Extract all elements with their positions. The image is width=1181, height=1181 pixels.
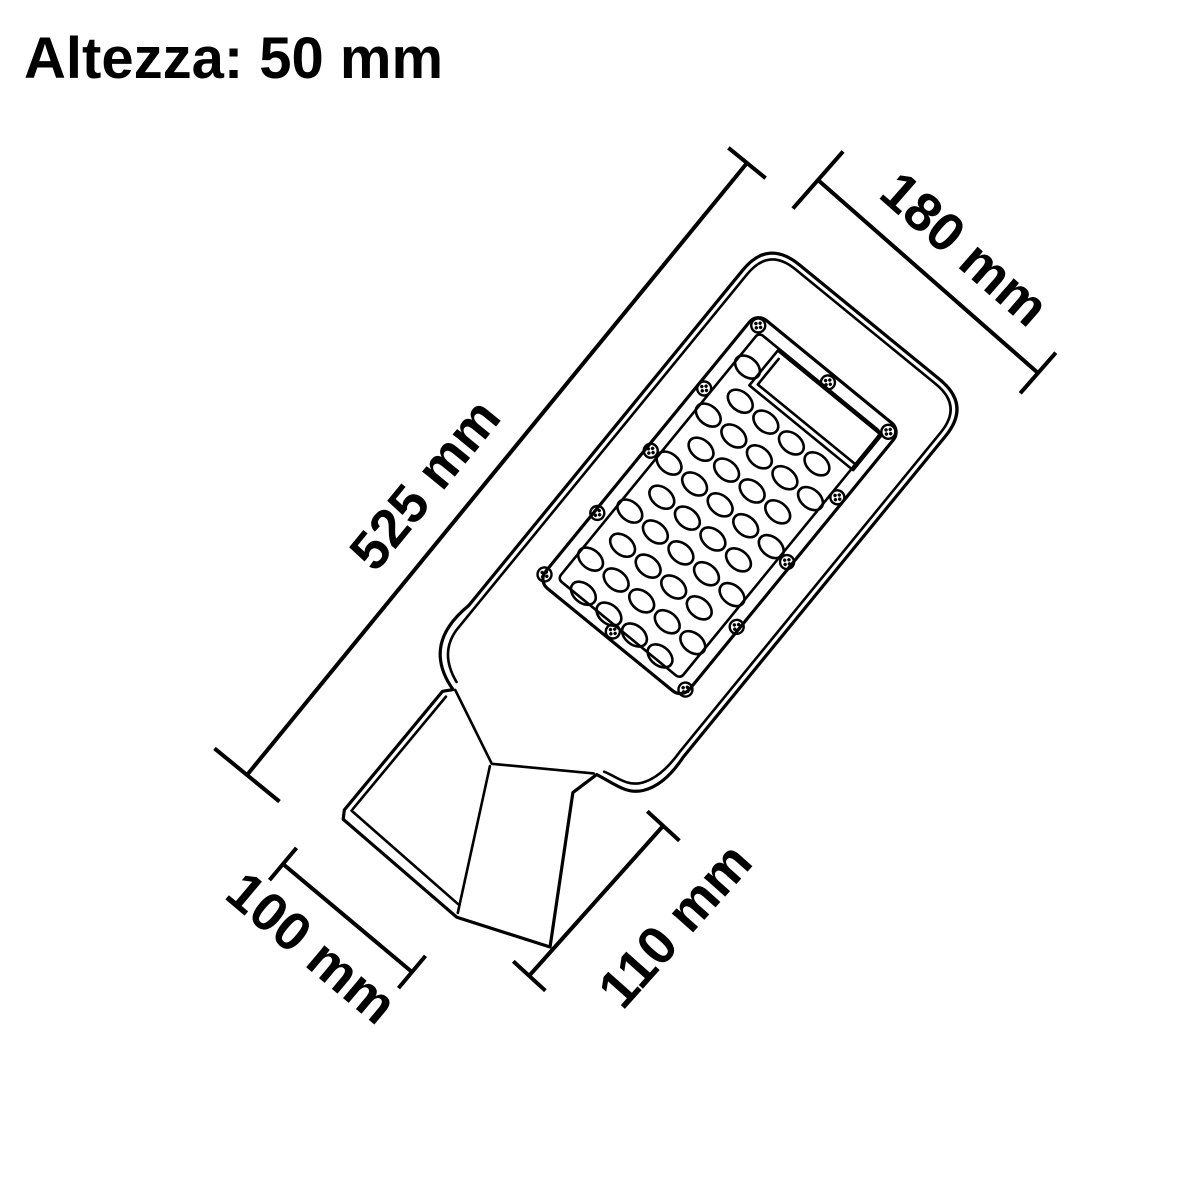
dimension-tick	[1020, 353, 1056, 394]
led-lens	[749, 406, 783, 438]
led-lens	[657, 571, 691, 603]
dimension-head-width: 180 mm	[793, 151, 1060, 393]
led-lens	[735, 475, 769, 507]
led-lens	[613, 495, 647, 527]
led-lens	[639, 516, 673, 548]
dimension-label-mount-length: 110 mm	[587, 832, 764, 1020]
led-lens	[684, 433, 718, 465]
led-lens	[567, 577, 601, 609]
led-lens	[678, 468, 712, 500]
screw-icon	[676, 680, 696, 700]
street-light-dimension-diagram: Altezza: 50 mm	[0, 0, 1181, 1181]
neck-crease-lines	[434, 672, 594, 817]
led-lens	[743, 441, 777, 473]
led-lens	[710, 454, 744, 486]
screw-set	[534, 311, 903, 701]
dimension-mount-width: 100 mm	[215, 848, 425, 1036]
led-lens	[723, 385, 757, 417]
led-lens	[717, 420, 751, 452]
dimension-tick	[399, 956, 426, 988]
led-lens	[671, 502, 705, 534]
led-lens	[645, 481, 679, 513]
led-lens	[676, 626, 710, 658]
dimension-line	[247, 163, 747, 775]
dimension-mount-length: 110 mm	[513, 811, 763, 1019]
drawing-title: Altezza: 50 mm	[24, 26, 443, 91]
mount-tube-end-rim	[348, 811, 461, 905]
dimension-tick	[215, 748, 280, 801]
dimension-tick	[793, 151, 843, 208]
screw-icon	[694, 379, 714, 399]
led-lens	[682, 592, 716, 624]
led-lens	[761, 496, 795, 528]
led-lens	[768, 462, 802, 494]
technical-drawing-page: Altezza: 50 mm	[0, 0, 1181, 1181]
lamp-body-outline	[309, 238, 984, 975]
street-light-drawing	[309, 238, 984, 975]
led-lens	[650, 606, 684, 638]
led-lens	[690, 558, 724, 590]
led-lens	[729, 510, 763, 542]
led-lens	[631, 550, 665, 582]
dimension-tick	[270, 848, 297, 880]
driver-cover-lip	[758, 359, 878, 466]
led-lens	[618, 619, 652, 651]
led-lens	[715, 578, 749, 610]
led-panel-frame	[538, 313, 901, 699]
led-lens	[574, 543, 608, 575]
led-lens	[722, 544, 756, 576]
dimension-tick	[728, 148, 765, 178]
screw-icon	[828, 487, 848, 507]
led-lens	[731, 351, 765, 383]
led-lens	[754, 530, 788, 562]
led-lens	[800, 448, 834, 480]
mount-tube-side-line	[353, 696, 446, 810]
led-lens	[775, 427, 809, 459]
led-lens	[703, 489, 737, 521]
led-lens	[599, 564, 633, 596]
led-lens	[794, 482, 828, 514]
led-lens	[606, 529, 640, 561]
led-lens	[691, 399, 725, 431]
led-lens	[696, 523, 730, 555]
led-lens	[625, 585, 659, 617]
led-lens	[643, 640, 677, 672]
led-lens	[664, 537, 698, 569]
